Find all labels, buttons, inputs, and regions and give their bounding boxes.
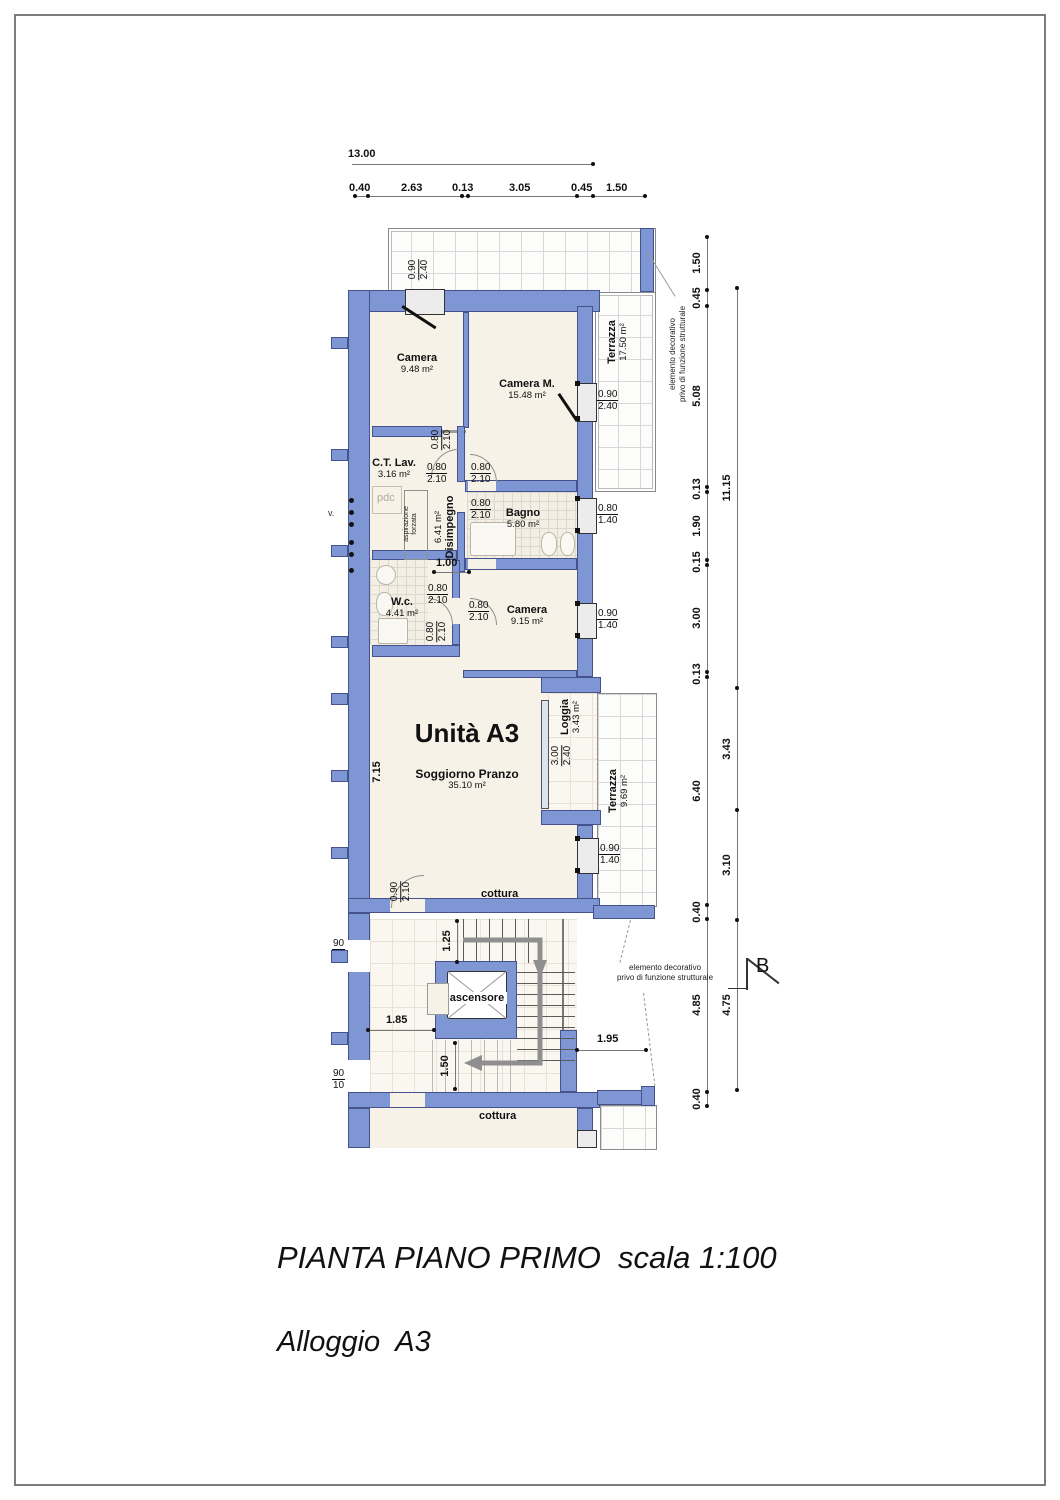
- dim-dot: [705, 917, 709, 921]
- opening-h: 2.10: [468, 612, 489, 623]
- dim-dot: [705, 675, 709, 679]
- dim-right: 1.90: [690, 506, 704, 546]
- dim-corridor: 1.00: [436, 557, 457, 569]
- window-camera2: [577, 603, 597, 639]
- dim-right: 4.85: [690, 985, 704, 1025]
- opening-h: 2.10: [401, 881, 412, 902]
- dim-dot: [705, 563, 709, 567]
- dim-dot: [705, 670, 709, 674]
- dim-right-outer: 4.75: [720, 985, 734, 1025]
- dim-dot: [366, 1028, 370, 1032]
- vent-dot: [349, 540, 354, 545]
- opening-w: 0.80: [427, 583, 448, 595]
- room-area: 3.43 m²: [571, 701, 582, 733]
- section-mark-line: [746, 958, 748, 990]
- dim-stair-bottom: 1.50: [438, 1046, 452, 1086]
- wc-sink: [376, 565, 396, 585]
- unit-title: Unità A3: [407, 718, 527, 749]
- wall-stub: [331, 1032, 348, 1045]
- dim-dot: [460, 194, 464, 198]
- opening-w: 0.90: [597, 608, 618, 620]
- window-jamb-dot: [575, 868, 580, 873]
- dim-dot: [705, 558, 709, 562]
- dim-right: 0.15: [690, 542, 704, 582]
- room-name: Camera M.: [477, 378, 577, 390]
- dim-dot: [643, 194, 647, 198]
- opening-label: 0.80 2.10: [430, 429, 453, 450]
- opening-h: 2.40: [562, 745, 573, 766]
- wall-stub: [331, 449, 348, 461]
- wall-loggia-bottom: [541, 810, 601, 825]
- opening-w: 3.00: [550, 745, 562, 766]
- section-mark-letter: B: [756, 960, 769, 972]
- opening-w: 0.80: [425, 621, 437, 642]
- drawing-title: PIANTA PIANO PRIMO scala 1:100: [277, 1240, 777, 1276]
- opening-label: 0.80 2.10: [427, 583, 448, 606]
- dim-dot: [705, 1090, 709, 1094]
- room-area: 35.10 m²: [407, 780, 527, 791]
- opening-label: 0.80 2.10: [426, 462, 447, 485]
- room-area: 17.50 m²: [618, 323, 629, 361]
- opening-label: 0.90 1.40: [599, 843, 620, 866]
- opening-w: 90: [332, 1068, 345, 1080]
- cottura-label-bottom: cottura: [479, 1110, 516, 1122]
- window-bagno: [577, 498, 597, 534]
- wall-stub: [331, 337, 348, 349]
- window-soggiorno: [577, 838, 599, 874]
- terrace-bottom: [600, 1105, 657, 1150]
- room-name: Soggiorno Pranzo: [407, 768, 527, 780]
- dim-dot: [705, 903, 709, 907]
- note-line: elemento decorativo: [668, 318, 678, 390]
- door-opening: [348, 940, 370, 972]
- cottura-label-top: cottura: [481, 888, 518, 900]
- room-label-camera-m: Camera M. 15.48 m²: [477, 378, 577, 401]
- dim-dot: [591, 194, 595, 198]
- opening-w: 0.80: [470, 462, 491, 474]
- opening-h: 2.40: [419, 259, 430, 280]
- room-label-soggiorno: Soggiorno Pranzo 35.10 m²: [407, 768, 527, 791]
- wc-shower: [378, 618, 408, 644]
- dim-line: [457, 921, 458, 963]
- vent-dot: [349, 568, 354, 573]
- opening-h: 2.10: [437, 621, 448, 642]
- dim-top: 1.50: [606, 182, 627, 194]
- vent-dot: [349, 510, 354, 515]
- dim-right: 0.40: [690, 892, 704, 932]
- opening-h: 2.40: [597, 401, 618, 412]
- wall-left-lower: [348, 1108, 370, 1148]
- wall-corridor-a: [457, 426, 465, 482]
- opening-h: 2.10: [426, 474, 447, 485]
- opening-h: 1.40: [597, 515, 618, 526]
- dim-dot: [705, 485, 709, 489]
- drawing-sheet: 13.00 0.40 2.63 0.13 3.05 0.45 1.50 elem…: [0, 0, 1060, 1500]
- dim-top: 2.63: [401, 182, 422, 194]
- toilet: [541, 532, 557, 556]
- opening-label: 0.80 2.10: [470, 462, 491, 485]
- dim-line: [577, 1050, 647, 1051]
- dim-stair-left: 1.85: [386, 1014, 407, 1026]
- dim-line: [352, 164, 594, 165]
- opening-h: 10: [332, 1080, 345, 1091]
- vent-label-line: forzata: [411, 513, 419, 534]
- dim-right: 0.13: [690, 654, 704, 694]
- opening-w: 0.90: [599, 843, 620, 855]
- window-lower: [577, 1130, 597, 1148]
- dim-dot: [735, 686, 739, 690]
- dim-soggiorno-height: 7.15: [370, 752, 384, 792]
- dim-right: 3.00: [690, 598, 704, 638]
- room-name: C.T. Lav.: [354, 457, 434, 469]
- dim-right: 0.40: [690, 1079, 704, 1119]
- opening-h: 1.40: [597, 620, 618, 631]
- opening-h: 2.10: [442, 429, 453, 450]
- dim-top: 3.05: [509, 182, 530, 194]
- room-area: 9.69 m²: [619, 775, 630, 807]
- dim-dot: [453, 1041, 457, 1045]
- dim-dot: [735, 918, 739, 922]
- dim-dot: [705, 235, 709, 239]
- opening-label: 0.90 1.40: [597, 608, 618, 631]
- dim-stair-top: 1.25: [440, 921, 454, 961]
- window-camera-m: [577, 383, 597, 422]
- dim-right: 5.08: [690, 376, 704, 416]
- wall-bottom-stair: [348, 1092, 600, 1108]
- dim-right: 1.50: [690, 243, 704, 283]
- opening-h: 2.10: [427, 595, 448, 606]
- room-name: Terrazza: [606, 320, 618, 364]
- dim-right: 6.40: [690, 771, 704, 811]
- opening-w: 0.80: [430, 429, 442, 450]
- loggia-terrace-divider: [597, 695, 598, 808]
- dim-dot: [591, 162, 595, 166]
- opening-label: 0.80 2.10: [470, 498, 491, 521]
- note-decorative-vertical: elemento decorativo privo di funzione st…: [667, 289, 689, 419]
- dim-dot: [705, 304, 709, 308]
- wall-stub: [331, 950, 348, 963]
- opening-label: 0.80 2.10: [425, 621, 448, 642]
- opening-label: 0.90 2.40: [597, 389, 618, 412]
- room-area: 6.41 m²: [433, 511, 444, 543]
- dim-top: 0.13: [452, 182, 473, 194]
- dim-line: [434, 572, 470, 573]
- dim-stair-right: 1.95: [597, 1033, 618, 1045]
- door-opening: [390, 1093, 425, 1107]
- bidet: [560, 532, 575, 556]
- dim-line: [455, 1043, 456, 1090]
- dim-right: 0.45: [690, 278, 704, 318]
- room-name: Camera: [367, 352, 467, 364]
- opening-w: 90: [332, 938, 345, 950]
- dim-dot: [466, 194, 470, 198]
- opening-w: 0.80: [597, 503, 618, 515]
- wall-stub: [331, 770, 348, 782]
- dim-dot: [467, 570, 471, 574]
- opening-h: 2.10: [470, 474, 491, 485]
- dim-dot: [705, 490, 709, 494]
- note-line: privo di funzione strutturale: [678, 306, 688, 402]
- dim-dot: [455, 919, 459, 923]
- window-jamb-dot: [575, 633, 580, 638]
- room-area: 9.15 m²: [477, 616, 577, 627]
- room-area: 3.16 m²: [354, 469, 434, 480]
- stair-direction-arrow: [420, 900, 680, 1100]
- door-opening: [452, 598, 460, 624]
- opening-label: 0.90 2.40: [407, 259, 430, 280]
- room-label-ctlav: C.T. Lav. 3.16 m²: [354, 457, 434, 480]
- room-label-terrazza2: Terrazza 9.69 m²: [605, 746, 631, 836]
- decorative-pillar-bottom: [641, 1086, 655, 1106]
- opening-h: 1.40: [599, 855, 620, 866]
- cut-label: v.: [328, 508, 334, 518]
- wall-stub: [331, 545, 348, 557]
- section-mark-tick: [728, 988, 746, 989]
- dim-right: 0.13: [690, 469, 704, 509]
- opening-w: 0.80: [470, 498, 491, 510]
- opening-w: 0.80: [468, 600, 489, 612]
- dim-right-outer: 3.10: [720, 845, 734, 885]
- dim-dot: [735, 286, 739, 290]
- window-jamb-dot: [575, 836, 580, 841]
- dim-dot: [735, 1088, 739, 1092]
- room-name: Terrazza: [607, 769, 619, 813]
- dim-line: [355, 196, 645, 197]
- door-opening: [468, 559, 496, 569]
- dim-right-outer: 3.43: [720, 729, 734, 769]
- window-jamb-dot: [575, 528, 580, 533]
- room-label-terrazza1: Terrazza 17.50 m²: [604, 297, 630, 387]
- dim-top: 0.40: [349, 182, 370, 194]
- room-area: 4.41 m²: [362, 608, 442, 619]
- loggia-glass-wall: [541, 700, 549, 809]
- dim-right-outer: 11.15: [720, 468, 734, 508]
- room-label-camera2: Camera 9.15 m²: [477, 604, 577, 627]
- room-name: Camera: [477, 604, 577, 616]
- dim-dot: [644, 1048, 648, 1052]
- dim-dot: [455, 960, 459, 964]
- dim-dot: [575, 1048, 579, 1052]
- dim-dot: [705, 1104, 709, 1108]
- room-label-camera1: Camera 9.48 m²: [367, 352, 467, 375]
- door-opening: [348, 1060, 370, 1092]
- opening-label: 3.00 2.40: [550, 745, 573, 766]
- dim-line: [368, 1030, 435, 1031]
- dim-dot: [353, 194, 357, 198]
- dim-dot: [705, 288, 709, 292]
- wall-stub: [331, 693, 348, 705]
- dim-total-width: 13.00: [348, 148, 376, 160]
- vent-label-line: aspirazione: [403, 506, 411, 542]
- room-name: Disimpegno: [444, 496, 456, 559]
- dim-dot: [432, 570, 436, 574]
- cottura-room-lower: [370, 1108, 577, 1148]
- dim-dot: [575, 194, 579, 198]
- opening-w: 0.90: [597, 389, 618, 401]
- wall-top: [348, 290, 600, 312]
- opening-label: 0.80 2.10: [468, 600, 489, 623]
- opening-w: 0.90: [407, 259, 419, 280]
- opening-label: 0.80 1.40: [597, 503, 618, 526]
- opening-label: 0.90 2.10: [389, 881, 412, 902]
- room-area: 15.48 m²: [477, 390, 577, 401]
- vent-shaft-label: aspirazione forzata: [402, 494, 420, 554]
- opening-label-cut: 90 10: [332, 1068, 345, 1091]
- vent-dot: [349, 498, 354, 503]
- wall-stub: [331, 636, 348, 648]
- dim-dot: [432, 1028, 436, 1032]
- room-name: Loggia: [559, 699, 571, 735]
- vent-dot: [349, 552, 354, 557]
- dim-dot: [735, 808, 739, 812]
- wall-wc-bottom: [372, 645, 460, 657]
- dim-dot: [366, 194, 370, 198]
- vent-dot: [349, 522, 354, 527]
- wall-stub: [331, 847, 348, 859]
- opening-w: 0.80: [426, 462, 447, 474]
- opening-w: 0.90: [389, 881, 401, 902]
- drawing-subtitle: Alloggio A3: [277, 1326, 431, 1359]
- opening-h: 2.10: [470, 510, 491, 521]
- pdc-label: pdc: [377, 492, 395, 504]
- window-jamb-dot: [575, 496, 580, 501]
- dim-dot: [453, 1087, 457, 1091]
- room-area: 9.48 m²: [367, 364, 467, 375]
- dim-top: 0.45: [571, 182, 592, 194]
